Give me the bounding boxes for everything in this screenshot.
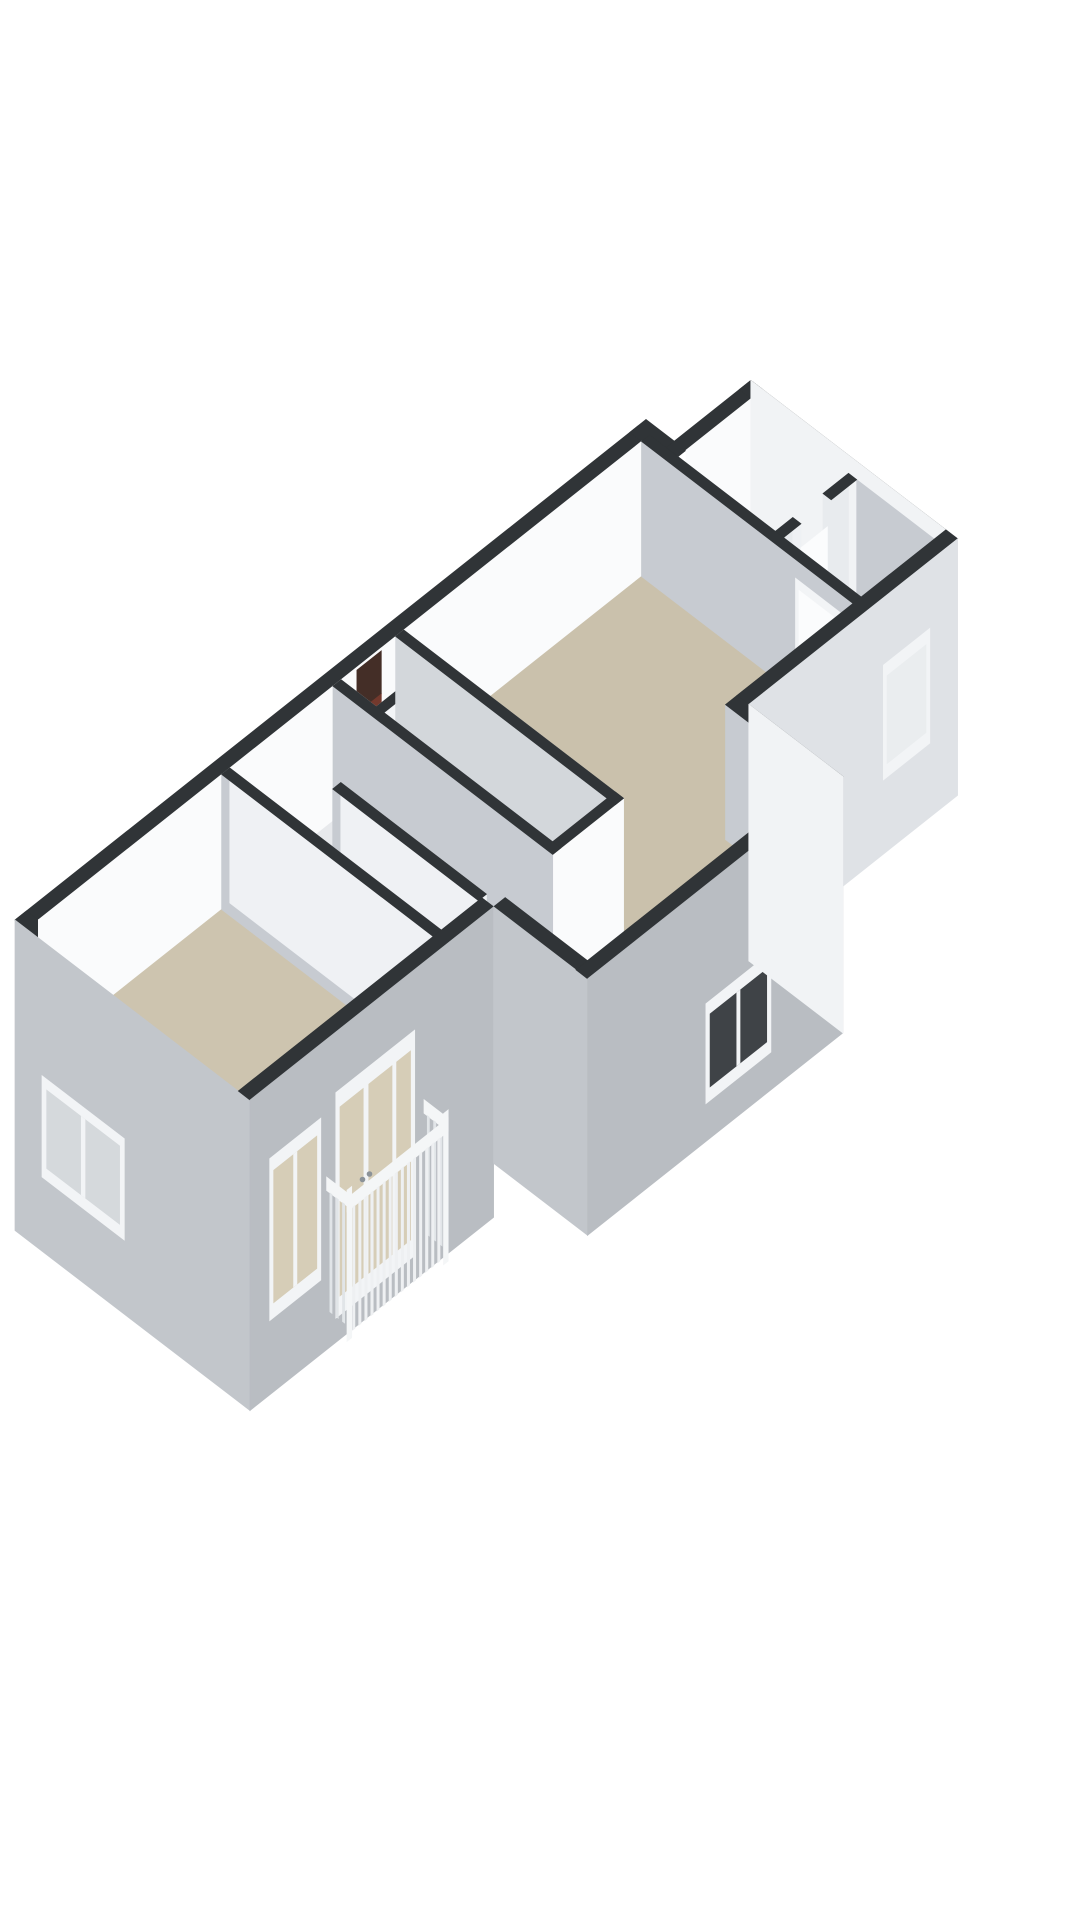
balcony-front-slats-9	[401, 1167, 403, 1292]
balcony-front-slats-12	[420, 1153, 422, 1278]
balcony-front-slats-1	[353, 1206, 355, 1331]
west-window-mullion	[81, 1117, 85, 1198]
balcony-front-slats-6	[383, 1181, 385, 1306]
balcony-front-slats-7	[389, 1177, 391, 1302]
balcony-front-slats-3	[365, 1196, 367, 1321]
balcony-front-slats-10	[407, 1162, 409, 1287]
floorplan-page	[0, 0, 1080, 1920]
balcony-front-slats-13	[426, 1148, 428, 1273]
balcony-front-slats-14	[432, 1143, 434, 1268]
balcony-side-slats-left-1	[330, 1193, 332, 1313]
balcony-front-slats-11	[413, 1157, 415, 1282]
french-door-handle-left	[360, 1177, 366, 1183]
balcony-front-slats-8	[395, 1172, 397, 1297]
balcony-side-slats-left-2	[336, 1198, 338, 1318]
balcony-front-slats-2	[359, 1201, 361, 1326]
balcony-front-slats-4	[371, 1191, 373, 1316]
floorplan-3d-render	[0, 0, 1080, 1920]
balcony-side-slats-left-3	[343, 1203, 345, 1323]
balcony-front-slats-5	[377, 1186, 379, 1311]
extension-window-mullion	[737, 990, 740, 1065]
balcony-front-slats-15	[438, 1138, 440, 1263]
floorplan-3d-view	[0, 0, 1080, 1920]
bedroom-window-mullion	[294, 1152, 297, 1287]
french-door-handle-right	[367, 1171, 373, 1177]
